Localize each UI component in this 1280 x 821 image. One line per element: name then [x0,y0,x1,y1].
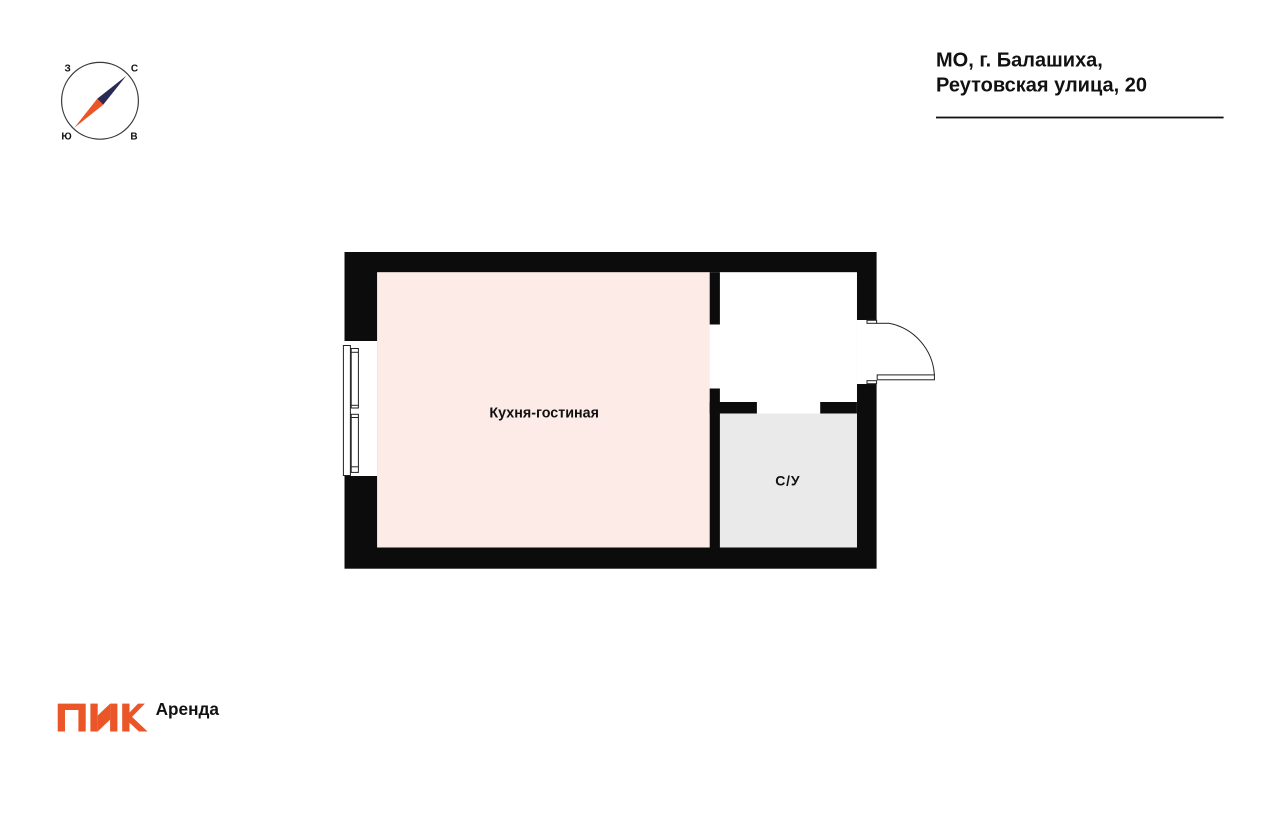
svg-text:С/У: С/У [775,473,800,489]
svg-text:Кухня-гостиная: Кухня-гостиная [489,405,599,421]
svg-text:В: В [130,132,137,143]
svg-text:С: С [131,64,138,75]
svg-text:МО, г. Балашиха,: МО, г. Балашиха, [936,49,1103,71]
svg-text:Ю: Ю [61,132,71,143]
svg-text:З: З [64,64,70,75]
svg-text:Реутовская улица, 20: Реутовская улица, 20 [936,75,1147,97]
svg-text:Аренда: Аренда [156,699,220,719]
